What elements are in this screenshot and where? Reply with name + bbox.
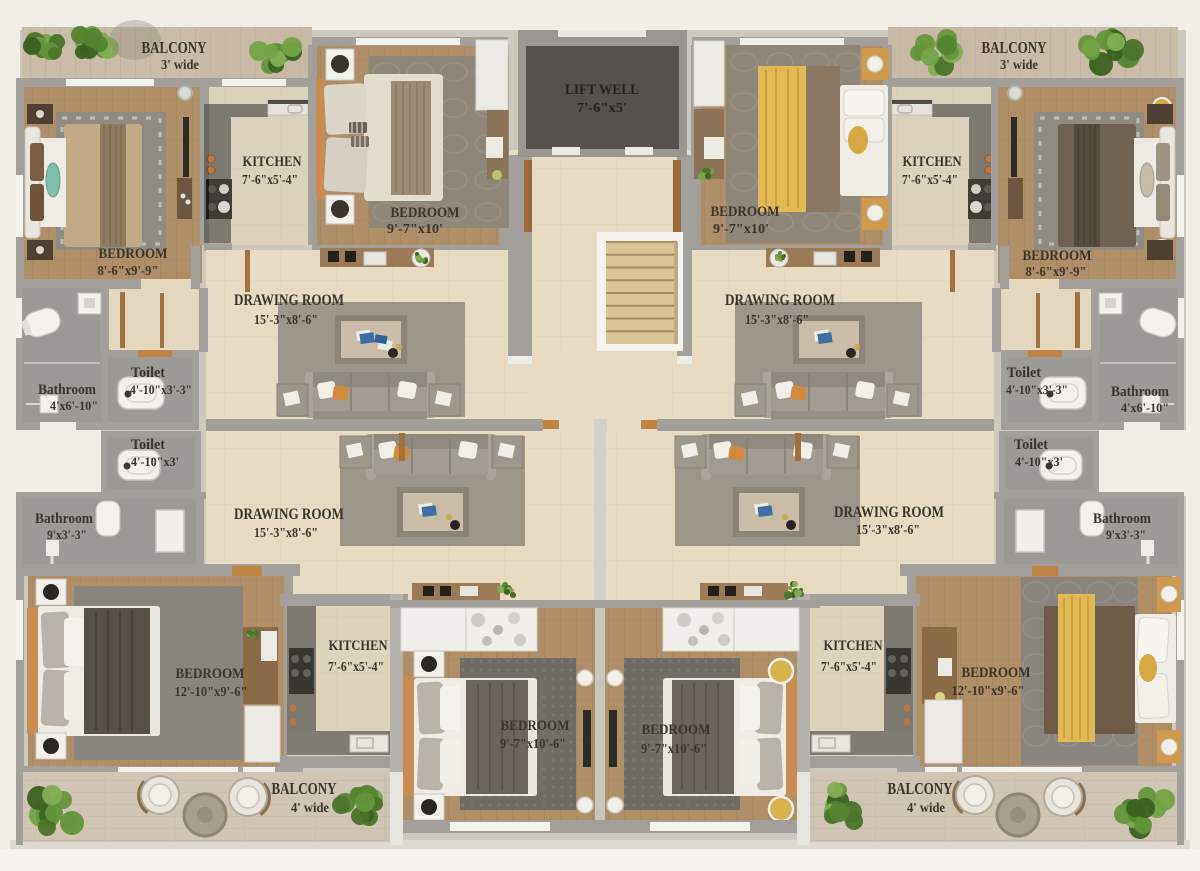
svg-text:KITCHEN: KITCHEN xyxy=(824,638,883,654)
svg-text:BALCONY: BALCONY xyxy=(982,38,1047,57)
svg-text:BALCONY: BALCONY xyxy=(142,38,207,57)
svg-text:BEDROOM: BEDROOM xyxy=(962,665,1031,681)
svg-text:BEDROOM: BEDROOM xyxy=(99,246,168,262)
svg-text:9'x3'-3": 9'x3'-3" xyxy=(1106,527,1146,542)
svg-text:BEDROOM: BEDROOM xyxy=(501,718,570,734)
svg-text:7'-6"x5'-4": 7'-6"x5'-4" xyxy=(902,172,958,187)
svg-text:BALCONY: BALCONY xyxy=(888,779,953,798)
svg-text:7'-6"x5'-4": 7'-6"x5'-4" xyxy=(242,172,298,187)
svg-text:7'-6"x5'-4": 7'-6"x5'-4" xyxy=(328,659,384,674)
svg-text:4' wide: 4' wide xyxy=(291,801,329,816)
svg-text:Bathroom: Bathroom xyxy=(35,511,93,527)
svg-text:KITCHEN: KITCHEN xyxy=(243,154,302,170)
svg-text:12'-10"x9'-6": 12'-10"x9'-6" xyxy=(175,684,248,699)
svg-text:9'-7"x10'-6": 9'-7"x10'-6" xyxy=(500,736,566,751)
svg-text:8'-6"x9'-9": 8'-6"x9'-9" xyxy=(98,263,159,278)
svg-text:BALCONY: BALCONY xyxy=(272,779,337,798)
svg-text:Toilet: Toilet xyxy=(131,437,165,453)
svg-text:12'-10"x9'-6": 12'-10"x9'-6" xyxy=(952,683,1025,698)
svg-text:BEDROOM: BEDROOM xyxy=(176,666,245,682)
svg-text:LIFT WELL: LIFT WELL xyxy=(565,82,639,98)
svg-text:BEDROOM: BEDROOM xyxy=(642,722,711,738)
svg-text:DRAWING ROOM: DRAWING ROOM xyxy=(234,506,344,523)
svg-text:Bathroom: Bathroom xyxy=(38,382,96,398)
svg-text:KITCHEN: KITCHEN xyxy=(903,154,962,170)
svg-text:15'-3"x8'-6": 15'-3"x8'-6" xyxy=(745,313,809,328)
svg-text:BEDROOM: BEDROOM xyxy=(1023,248,1092,264)
svg-text:4'-10"x3': 4'-10"x3' xyxy=(131,454,179,469)
svg-text:3' wide: 3' wide xyxy=(161,58,199,73)
svg-text:DRAWING ROOM: DRAWING ROOM xyxy=(725,292,835,309)
svg-text:4'-10"x3': 4'-10"x3' xyxy=(1015,454,1063,469)
svg-text:DRAWING ROOM: DRAWING ROOM xyxy=(834,504,944,521)
svg-text:KITCHEN: KITCHEN xyxy=(329,638,388,654)
svg-text:BEDROOM: BEDROOM xyxy=(391,205,460,221)
svg-text:Bathroom: Bathroom xyxy=(1093,511,1151,527)
svg-text:9'-7"x10'-6": 9'-7"x10'-6" xyxy=(641,741,707,756)
svg-text:DRAWING ROOM: DRAWING ROOM xyxy=(234,292,344,309)
svg-text:9'-7"x10': 9'-7"x10' xyxy=(387,221,443,236)
svg-text:Bathroom: Bathroom xyxy=(1111,384,1169,400)
svg-text:7'-6"x5'-4": 7'-6"x5'-4" xyxy=(821,659,877,674)
svg-text:9'x3'-3": 9'x3'-3" xyxy=(47,527,87,542)
svg-text:Toilet: Toilet xyxy=(131,365,165,381)
svg-text:3' wide: 3' wide xyxy=(1000,58,1038,73)
svg-text:BEDROOM: BEDROOM xyxy=(711,204,780,220)
svg-text:4' wide: 4' wide xyxy=(907,801,945,816)
svg-text:15'-3"x8'-6": 15'-3"x8'-6" xyxy=(254,526,318,541)
svg-text:Toilet: Toilet xyxy=(1007,365,1041,381)
svg-text:7'-6"x5': 7'-6"x5' xyxy=(577,100,627,115)
svg-text:4'-10"x3'-3": 4'-10"x3'-3" xyxy=(1006,382,1068,397)
svg-text:Toilet: Toilet xyxy=(1014,437,1048,453)
svg-text:15'-3"x8'-6": 15'-3"x8'-6" xyxy=(856,523,920,538)
svg-text:9'-7"x10': 9'-7"x10' xyxy=(713,221,769,236)
svg-text:4'-10"x3'-3": 4'-10"x3'-3" xyxy=(130,382,192,397)
svg-text:8'-6"x9'-9": 8'-6"x9'-9" xyxy=(1026,264,1087,279)
svg-text:4'x6'-10": 4'x6'-10" xyxy=(1121,400,1169,415)
svg-text:15'-3"x8'-6": 15'-3"x8'-6" xyxy=(254,313,318,328)
svg-text:4'x6'-10": 4'x6'-10" xyxy=(50,398,98,413)
